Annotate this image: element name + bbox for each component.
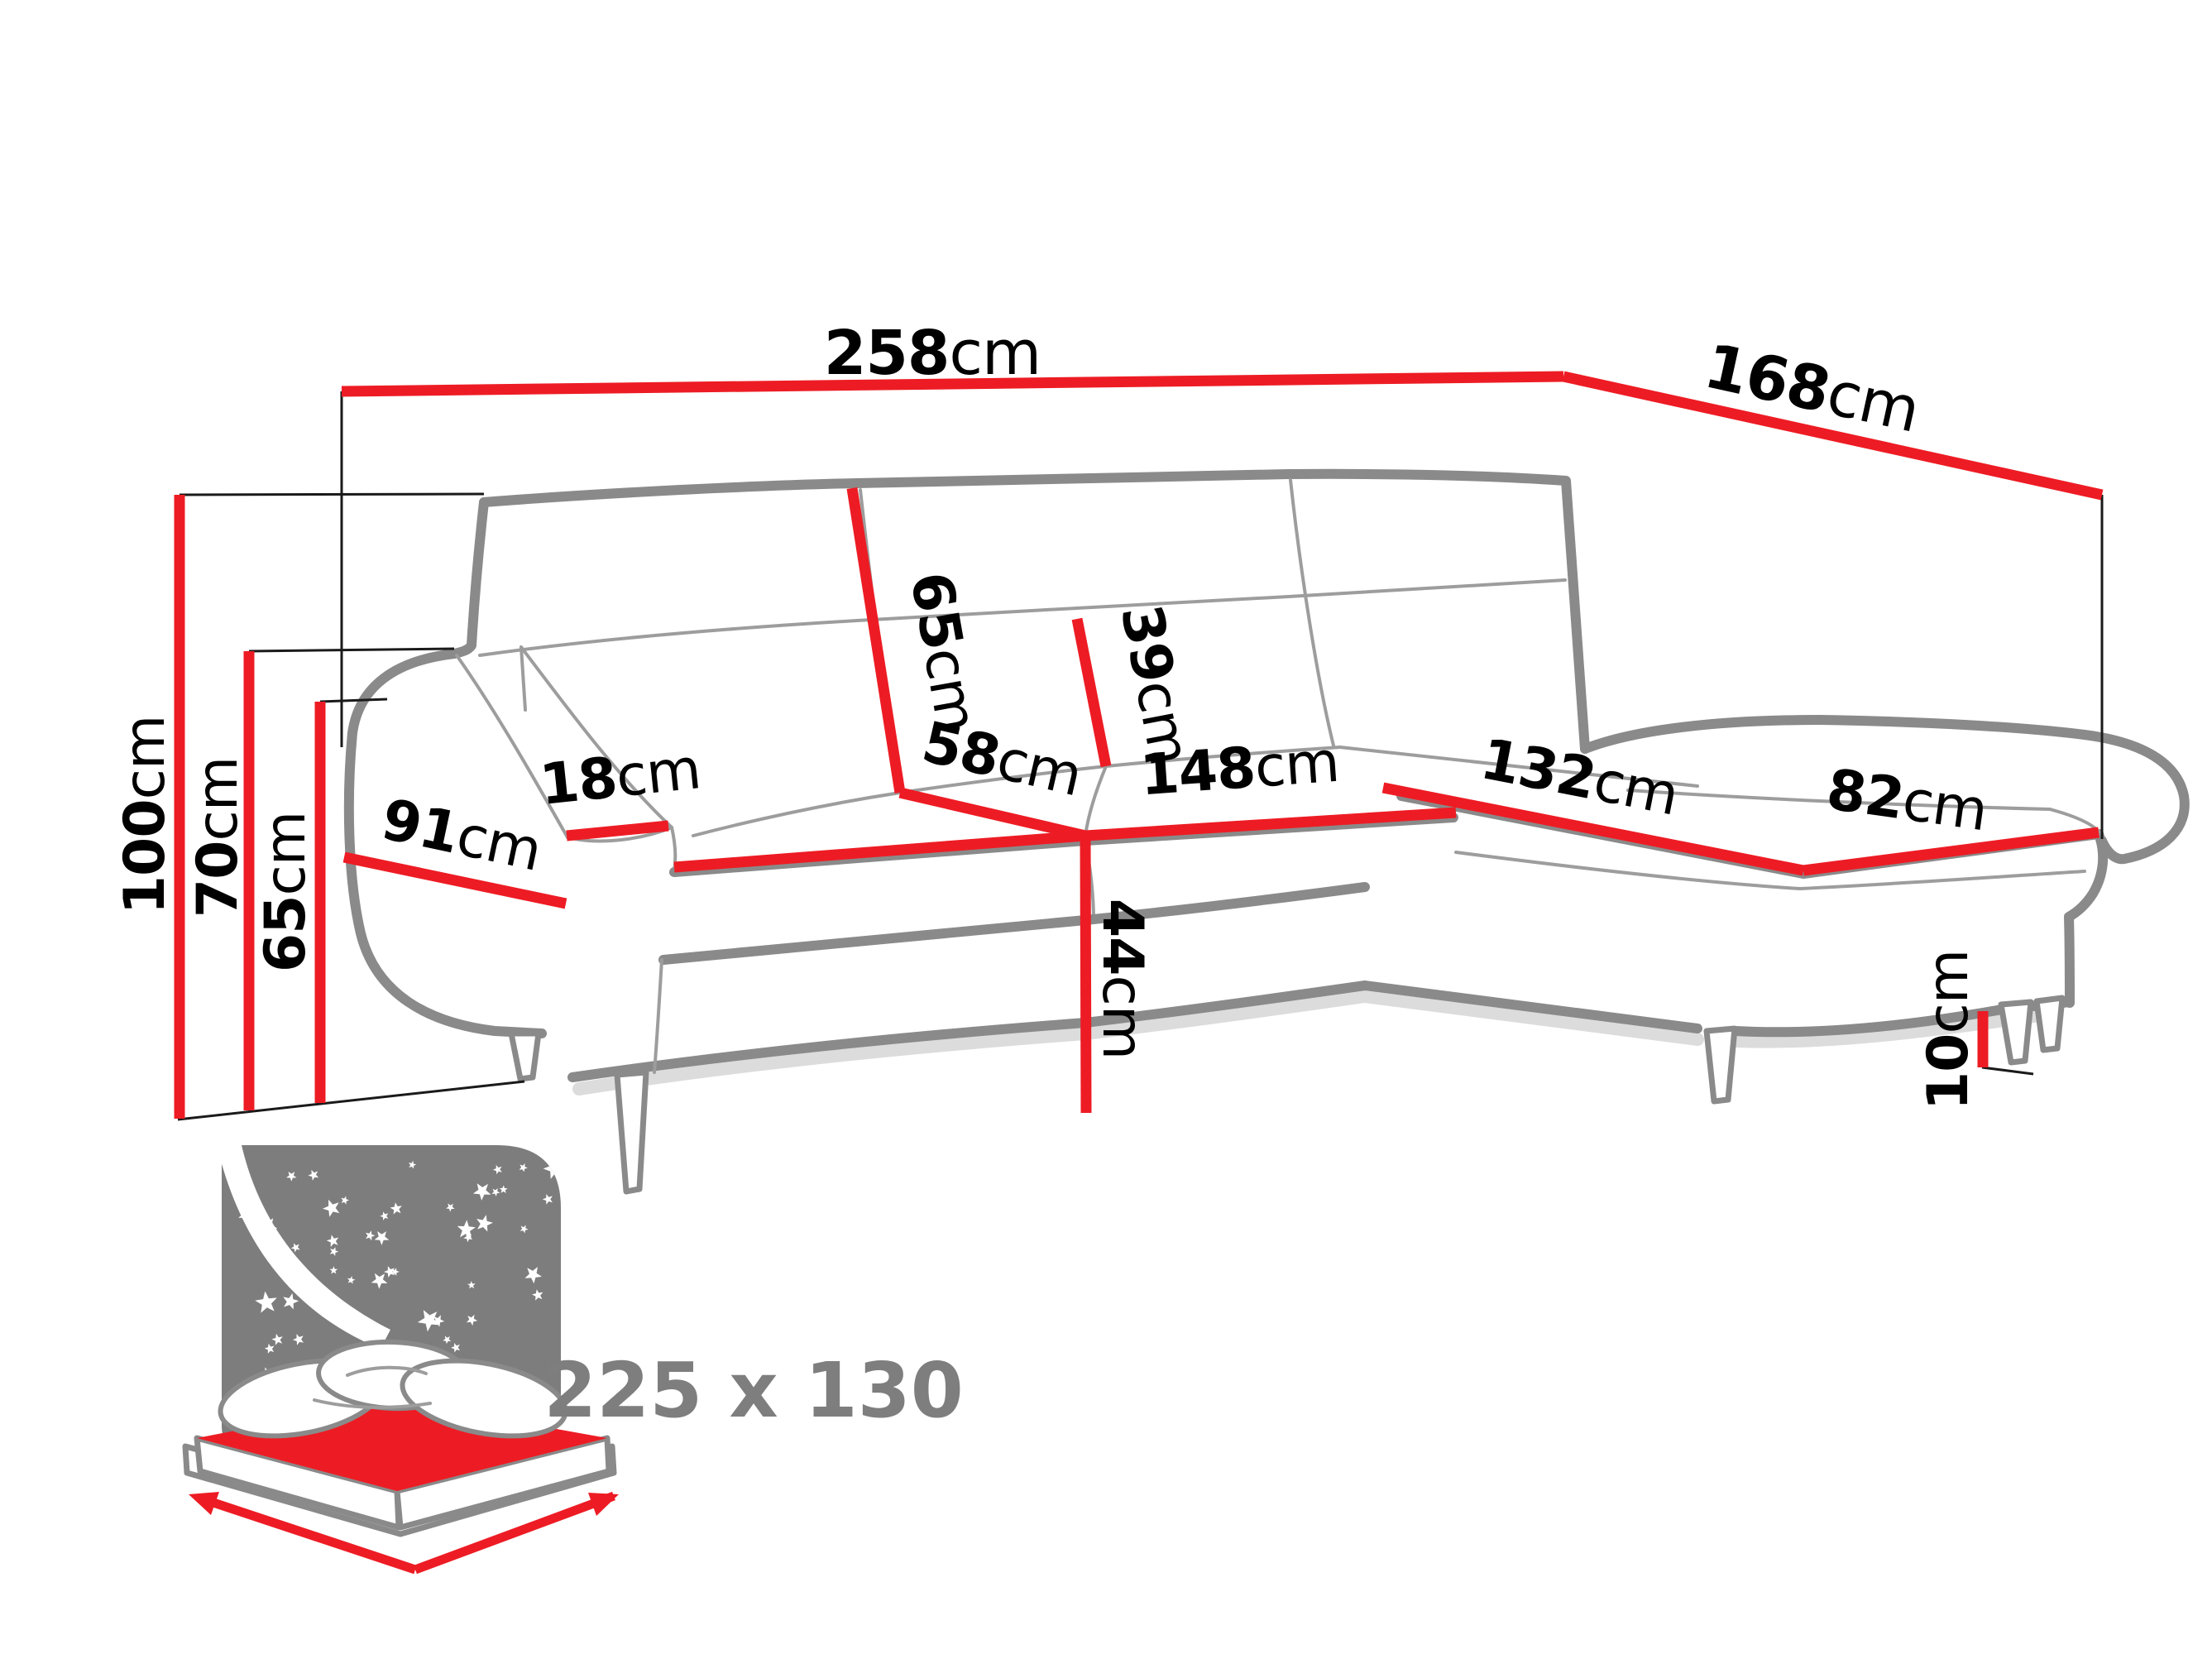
left-armrest-leg <box>511 1033 539 1079</box>
dim-label-armrest-height: 65cm <box>253 812 318 972</box>
tick-leg-height <box>1982 1067 2033 1074</box>
dim-label-seat-height: 44cm <box>1089 899 1155 1059</box>
backrest-seam-2 <box>1290 480 1333 746</box>
dim-label-seat-width: 148cm <box>1138 730 1342 809</box>
dim-label-total-width: 258cm <box>824 318 1041 389</box>
dim-label-leg-height: 10cm <box>1916 950 1981 1110</box>
chaise-rear-right-leg <box>2037 998 2062 1050</box>
chaise-right-edge <box>2069 834 2103 1003</box>
tick-backrest-height <box>249 649 454 651</box>
dim-line-seat-height <box>1085 836 1086 1113</box>
sofa-dimension-diagram: 258cm 168cm 100cm 70cm 65cm 65cm 39cm 58… <box>0 0 2212 1659</box>
seat <box>572 747 1453 1077</box>
dim-line-backrest-width <box>852 488 900 793</box>
front-left-leg <box>617 1072 646 1192</box>
dim-label-backrest-width: 65cm <box>897 568 989 737</box>
chaise-front-right-leg <box>2001 1002 2031 1062</box>
headrest-seam <box>480 580 1565 655</box>
ground-line <box>178 1081 524 1120</box>
dim-line-seat-width <box>674 813 1456 867</box>
seat-base-bottom <box>572 985 1365 1077</box>
tick-total-height <box>180 494 484 495</box>
dim-label-seat-depth: 58cm <box>917 710 1088 810</box>
sleeping-area-label: 225 x 130 <box>543 1346 963 1435</box>
dim-label-chaise-width: 82cm <box>1822 757 1990 844</box>
dim-label-backrest-height: 70cm <box>185 757 251 918</box>
sleeping-function-icon: 225 x 130 <box>185 1145 964 1570</box>
chaise-front-left-leg <box>1707 1028 1735 1101</box>
seat-base-seam <box>663 887 1365 960</box>
dim-label-armrest-top-width: 18cm <box>537 736 703 818</box>
tick-armrest-height <box>320 699 387 702</box>
dim-label-total-height: 100cm <box>113 716 178 915</box>
